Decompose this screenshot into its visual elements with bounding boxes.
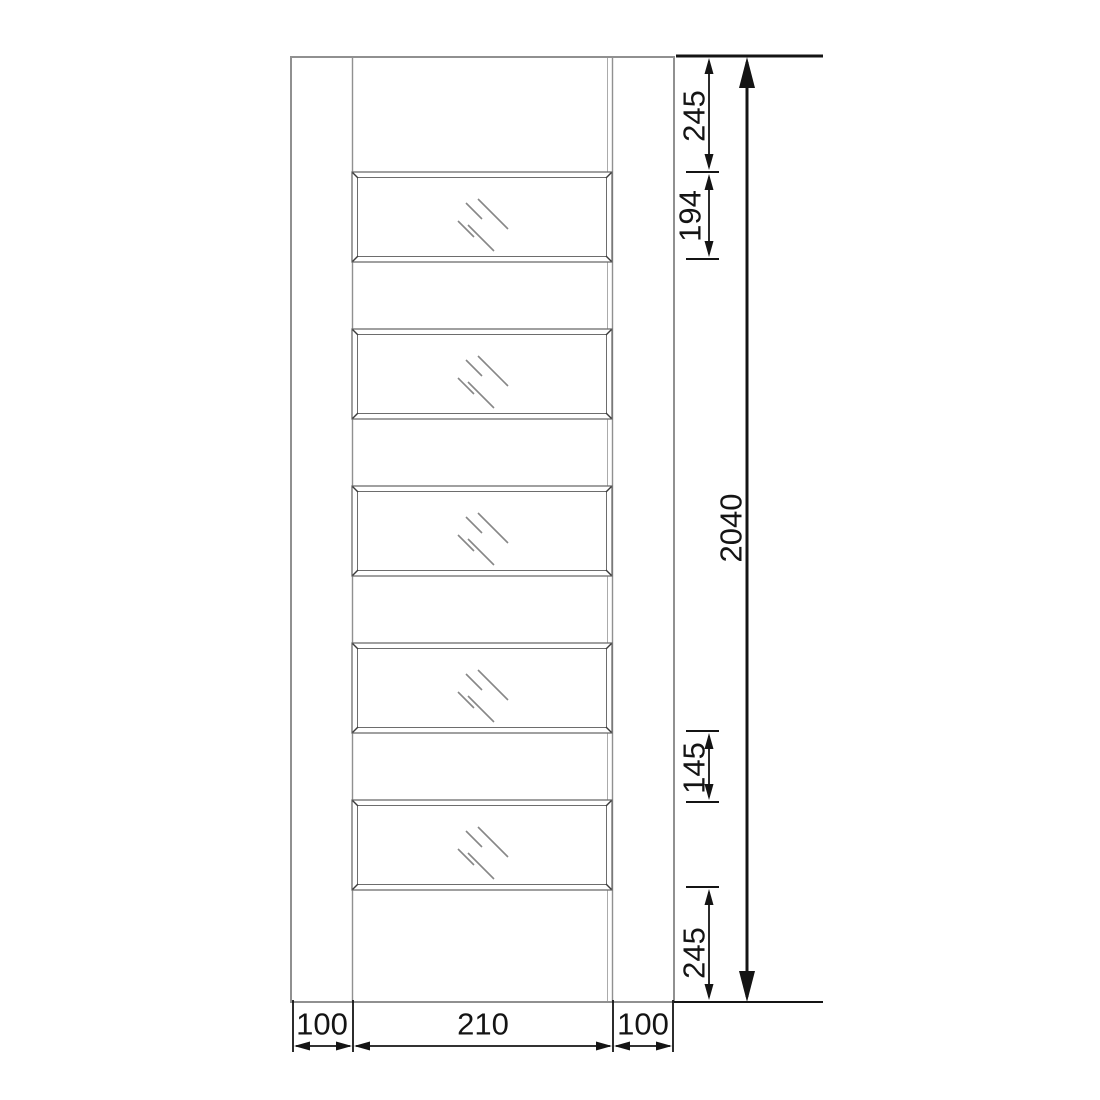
dimension-right-stile-value: 100 xyxy=(617,1007,669,1042)
dimension-mid-rail-value: 145 xyxy=(677,742,712,794)
glass-panel-5 xyxy=(352,800,612,890)
glass-panel-1 xyxy=(352,172,612,262)
glass-panel-3 xyxy=(352,486,612,576)
dimension-left-stile: 100 xyxy=(294,1007,352,1051)
glass-panel-4 xyxy=(352,643,612,733)
dimension-panel-height: 194 xyxy=(673,174,714,257)
dimension-right-stile: 100 xyxy=(614,1007,672,1051)
dimension-left-stile-value: 100 xyxy=(296,1007,348,1042)
drawing-canvas: 245 194 2040 145 245 xyxy=(0,0,1100,1100)
dimension-glass-width: 210 xyxy=(354,1007,612,1051)
dimension-door-height-value: 2040 xyxy=(714,494,749,563)
dimension-door-height: 2040 xyxy=(714,57,756,1002)
dimension-glass-width-value: 210 xyxy=(457,1007,509,1042)
dimension-top-rail-value: 245 xyxy=(677,90,712,142)
dimension-mid-rail: 145 xyxy=(677,733,714,800)
glass-panel-2 xyxy=(352,329,612,419)
dimension-bottom-rail: 245 xyxy=(677,889,714,1000)
dimension-top-rail: 245 xyxy=(677,58,714,170)
dimension-panel-height-value: 194 xyxy=(673,190,708,242)
dimension-bottom-rail-value: 245 xyxy=(677,927,712,979)
door-technical-drawing: 245 194 2040 145 245 xyxy=(0,0,1100,1100)
